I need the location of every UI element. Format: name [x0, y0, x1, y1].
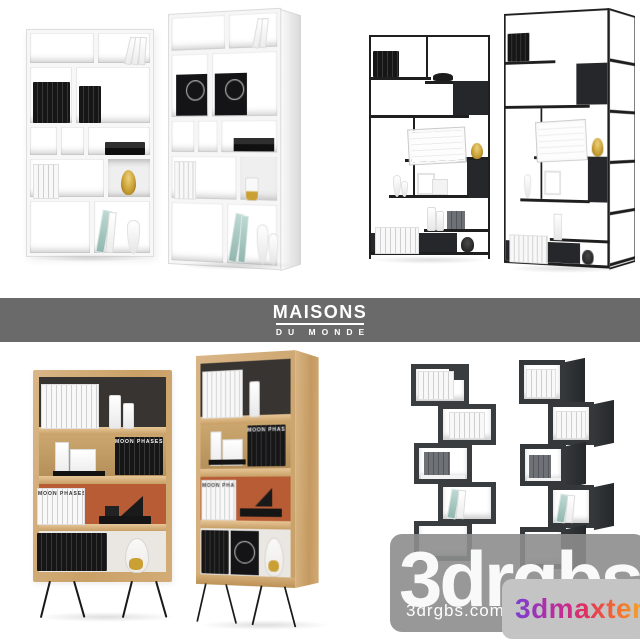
black-book-row: [33, 82, 70, 123]
watermark-badge: 3dmaxter: [502, 579, 640, 639]
shelf-cell: [172, 15, 226, 51]
moon-phases-books-white: MOON PHASES: [37, 488, 85, 525]
white-box-frame: [432, 179, 448, 195]
bookcase-side-panel: [295, 350, 318, 588]
metal-shelf-front: [369, 35, 490, 259]
foot: [369, 255, 371, 259]
back-panel: [453, 81, 488, 115]
shelf-cell: [30, 127, 57, 155]
white-book-row: [375, 227, 419, 254]
frame-post: [488, 35, 490, 255]
bookcase-bottom-board: [196, 574, 295, 588]
shelf-side-frame: [609, 8, 635, 270]
white-base-slab: [527, 478, 561, 481]
black-box-set: [215, 73, 247, 116]
zigzag-box: [438, 482, 496, 524]
badge-text: 3dmaxter: [515, 593, 640, 625]
bookend-base: [53, 471, 105, 476]
white-box-frame: [544, 171, 561, 196]
white-canister: [427, 207, 436, 231]
framed-art: [408, 128, 466, 165]
oak-bookcase-front: MOON PHASES MOON PHASES: [33, 370, 172, 582]
shelf-side-panel: [280, 9, 301, 271]
white-canister: [554, 214, 562, 241]
moon-phases-books-dark: MOON PHASES: [247, 424, 285, 466]
shelf-cell: [172, 121, 195, 152]
black-book-row: [508, 33, 530, 62]
black-book-stack: [105, 142, 145, 155]
moon-phases-books-white: MOON PHASES: [201, 480, 236, 521]
book-series-label: MOON PHASES: [115, 437, 163, 445]
amber-lamp: [471, 143, 483, 159]
floor-shadow: [30, 254, 148, 262]
brand-title: MAISONS: [273, 303, 368, 321]
white-bookshelf-front: [26, 29, 154, 257]
product-showcase: MAISONS DU MONDE MOON PHASES MOON PHASES: [0, 0, 640, 640]
shelf-cell: [198, 121, 218, 153]
shelf-board-wood: [201, 468, 291, 477]
zigzag-box-side: [566, 442, 586, 488]
bookend-base: [209, 459, 246, 465]
shelf-cell: [30, 33, 94, 63]
floor-shadow: [200, 620, 330, 630]
floor-shadow: [36, 612, 176, 622]
circle-motif: [225, 79, 244, 100]
white-canister: [436, 211, 444, 231]
black-book-stack: [234, 138, 275, 152]
gray-book-row: [424, 452, 450, 475]
back-panel: [588, 157, 607, 203]
zigzag-box: [411, 364, 469, 406]
black-book-series: [37, 533, 107, 571]
white-book-row: [418, 371, 454, 400]
black-book-row: [79, 86, 101, 123]
shelf-board: [369, 77, 431, 80]
book-series-label: MOON PHASES: [202, 481, 235, 489]
zigzag-box-angled: [548, 485, 594, 528]
white-book-row: [509, 234, 548, 264]
glass-lamp: [265, 537, 284, 577]
white-vase: [393, 175, 401, 197]
oak-bookcase-angled: MOON PHASES MOON PHASES: [196, 350, 295, 630]
book-series-label: MOON PHASES: [38, 489, 84, 497]
white-vase: [524, 174, 531, 198]
shelf-board: [504, 105, 590, 109]
watermark-site-url: 3drgbs.com: [406, 601, 505, 621]
shelf-board-wood: [201, 520, 291, 530]
shelf-board-wood: [39, 476, 166, 484]
zigzag-box: [438, 404, 496, 445]
white-book-row: [202, 370, 242, 419]
backboard-wood: [201, 422, 291, 469]
black-tray: [240, 508, 282, 517]
black-tray: [99, 516, 151, 524]
metal-shelf-angled: [504, 8, 609, 272]
dark-bowl: [433, 73, 453, 81]
foot: [488, 255, 490, 259]
circle-motif: [234, 541, 255, 564]
zigzag-box-side: [594, 483, 614, 530]
brand-banner: MAISONS DU MONDE: [0, 298, 640, 342]
framed-art: [536, 120, 587, 162]
backboard-black: [201, 359, 291, 417]
shelf-cell: [61, 127, 84, 155]
floor-shadow: [508, 264, 624, 273]
bookend-slab: [210, 431, 221, 466]
white-book-row: [449, 412, 485, 439]
zigzag-box: [414, 443, 472, 484]
black-triangle-object: [255, 488, 272, 507]
frame-top: [504, 8, 609, 16]
shelf-board: [520, 198, 590, 203]
frame-post: [504, 14, 506, 262]
white-book-row: [556, 411, 586, 439]
amber-liquid: [129, 558, 143, 570]
back-panel: [576, 63, 607, 105]
dark-vase: [461, 237, 474, 252]
bookcase-body: MOON PHASES MOON PHASES: [196, 350, 295, 588]
shelf-board-wood: [39, 524, 166, 531]
white-bookshelf-angled: [168, 8, 281, 271]
backboard-light: [201, 528, 291, 577]
white-book-row: [33, 164, 59, 199]
amber-liquid: [268, 560, 279, 572]
floor-shadow: [372, 256, 488, 264]
floor-shadow: [178, 261, 296, 270]
candlestick: [249, 381, 259, 417]
zigzag-box-angled: [520, 444, 566, 486]
zigzag-box-angled: [519, 360, 565, 404]
shelf-cell: [172, 202, 224, 263]
backboard-orange: [201, 476, 291, 521]
zigzag-box-side: [565, 358, 585, 406]
zigzag-box-angled: [548, 402, 594, 445]
leaning-books: [565, 495, 575, 524]
shelf-board: [369, 115, 469, 118]
hairpin-leg: [155, 581, 167, 618]
bookend-slab: [55, 442, 69, 474]
zigzag-box-side: [594, 400, 614, 447]
shelf-cell: [30, 201, 90, 253]
leaning-books: [456, 490, 466, 520]
black-blocks: [105, 506, 119, 516]
dark-vase: [582, 250, 594, 265]
white-book-row: [174, 161, 196, 200]
shelf-board: [389, 195, 469, 198]
gray-book-row: [447, 211, 465, 229]
hairpin-leg: [196, 583, 206, 622]
frame-top: [369, 35, 490, 37]
amber-lamp: [121, 170, 136, 195]
back-panel: [467, 160, 488, 198]
brand-subtitle: DU MONDE: [270, 328, 370, 337]
frame-divider: [426, 37, 428, 77]
white-book-row: [526, 369, 556, 398]
black-box-set: [231, 531, 259, 576]
moon-phases-books-dark: MOON PHASES: [115, 437, 163, 475]
hairpin-leg: [40, 581, 51, 618]
brand-divider: [276, 323, 364, 325]
book-series-label: MOON PHASES: [247, 424, 285, 433]
white-book-row: [41, 384, 99, 429]
black-book-series: [201, 530, 228, 574]
frame-post: [369, 35, 371, 255]
shelf-board-wood: [201, 414, 291, 425]
gray-book-row: [529, 455, 551, 478]
black-book-row: [373, 51, 399, 77]
white-base-slab: [421, 475, 465, 479]
circle-motif: [186, 80, 204, 101]
candlestick: [109, 395, 121, 429]
candlestick: [123, 403, 134, 429]
hairpin-leg: [225, 584, 237, 624]
amber-lamp: [592, 138, 604, 157]
bookend-slab: [222, 439, 242, 466]
